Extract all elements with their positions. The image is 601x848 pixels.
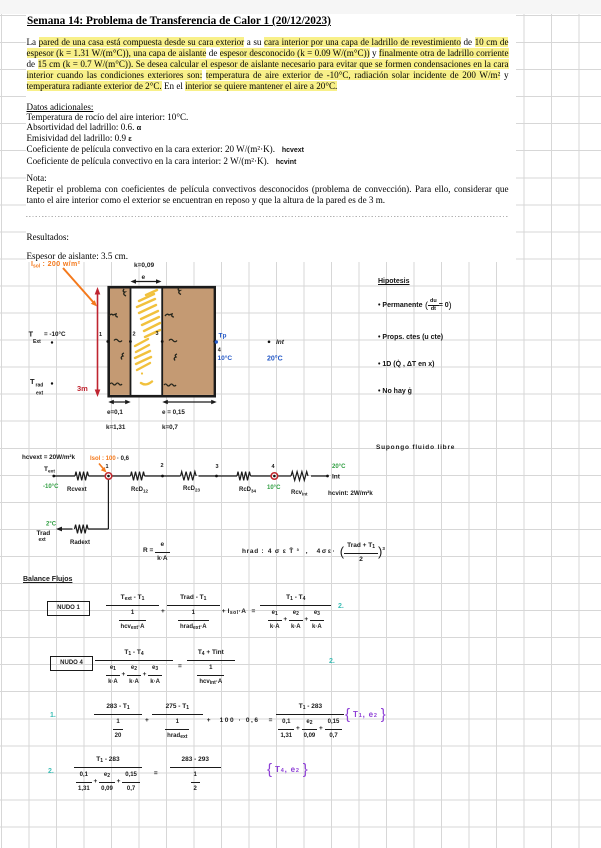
svg-text:RcD23: RcD23	[183, 486, 201, 493]
svg-text:T: T	[30, 377, 35, 386]
svg-text:Text: Text	[44, 466, 55, 475]
svg-text:Isol : 200 w/m²: Isol : 200 w/m²	[31, 261, 81, 270]
svg-text:Isol : 100: Isol : 100	[90, 456, 116, 462]
svg-text:RcD34: RcD34	[239, 487, 257, 494]
svg-text:3: 3	[156, 331, 159, 337]
svg-text:4: 4	[218, 348, 222, 354]
svg-text:-10°C: -10°C	[43, 484, 59, 490]
svg-text:Trad: Trad	[37, 530, 51, 537]
svg-text:Supongo fluido libre: Supongo fluido libre	[376, 444, 455, 451]
svg-text:Tp: Tp	[219, 333, 227, 340]
svg-text:= -10°C: = -10°C	[44, 330, 66, 338]
svg-text:· 0,6: · 0,6	[117, 456, 130, 462]
svg-text:2: 2	[161, 463, 164, 469]
svg-text:e = 0,15: e = 0,15	[162, 409, 185, 416]
svg-text:3: 3	[216, 464, 219, 470]
svg-text:4: 4	[272, 464, 276, 470]
svg-text:20°C: 20°C	[267, 355, 283, 363]
svg-text:hcvext = 20W/m²k: hcvext = 20W/m²k	[22, 454, 76, 461]
svg-text:k=1,31: k=1,31	[106, 424, 126, 431]
svg-text:10°C: 10°C	[218, 354, 233, 362]
svg-text:Rcvint: Rcvint	[291, 490, 308, 497]
svg-text:Int: Int	[332, 474, 341, 481]
svg-text:RcD12: RcD12	[131, 487, 149, 494]
svg-text:hcvint: 2W/m²k: hcvint: 2W/m²k	[328, 490, 373, 497]
svg-text:3m: 3m	[77, 384, 88, 393]
svg-text:e=0,1: e=0,1	[107, 409, 123, 416]
svg-text:Int: Int	[276, 339, 285, 346]
svg-text:k=0,09: k=0,09	[134, 262, 154, 269]
svg-text:T: T	[29, 330, 34, 339]
svg-text:1: 1	[106, 464, 109, 470]
svg-text:2°C: 2°C	[46, 522, 57, 528]
svg-text:ext: ext	[36, 391, 44, 397]
svg-text:k=0,7: k=0,7	[162, 424, 178, 431]
svg-text:20°C: 20°C	[332, 464, 346, 470]
svg-text:Radext: Radext	[70, 540, 90, 546]
svg-text:Ext: Ext	[33, 339, 41, 345]
svg-text:1: 1	[99, 332, 102, 338]
svg-text:e: e	[142, 274, 146, 281]
svg-text:Rcvext: Rcvext	[67, 487, 87, 493]
svg-text:rad: rad	[36, 383, 44, 389]
svg-text:2: 2	[133, 332, 136, 338]
svg-text:10°C: 10°C	[267, 485, 281, 491]
svg-text:ext: ext	[39, 537, 47, 543]
